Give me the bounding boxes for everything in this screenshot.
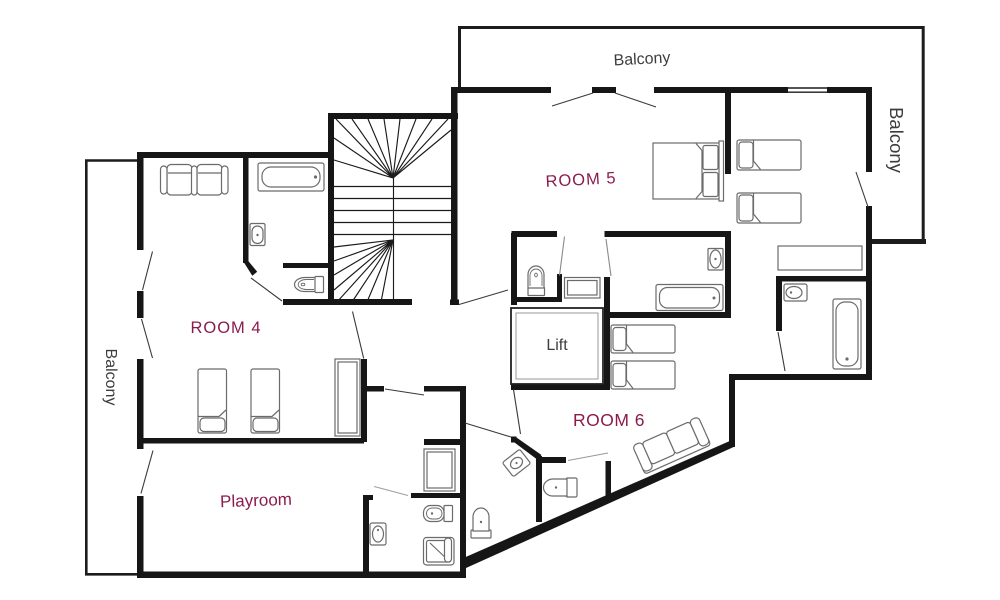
svg-text:Lift: Lift xyxy=(546,337,568,354)
svg-text:ROOM 6: ROOM 6 xyxy=(573,410,645,430)
svg-text:ROOM 5: ROOM 5 xyxy=(545,169,617,191)
svg-text:Balcony: Balcony xyxy=(886,107,907,174)
svg-text:Balcony: Balcony xyxy=(613,50,671,70)
svg-text:ROOM 4: ROOM 4 xyxy=(190,319,261,337)
svg-text:Playroom: Playroom xyxy=(220,490,292,511)
svg-text:Balcony: Balcony xyxy=(102,349,119,406)
